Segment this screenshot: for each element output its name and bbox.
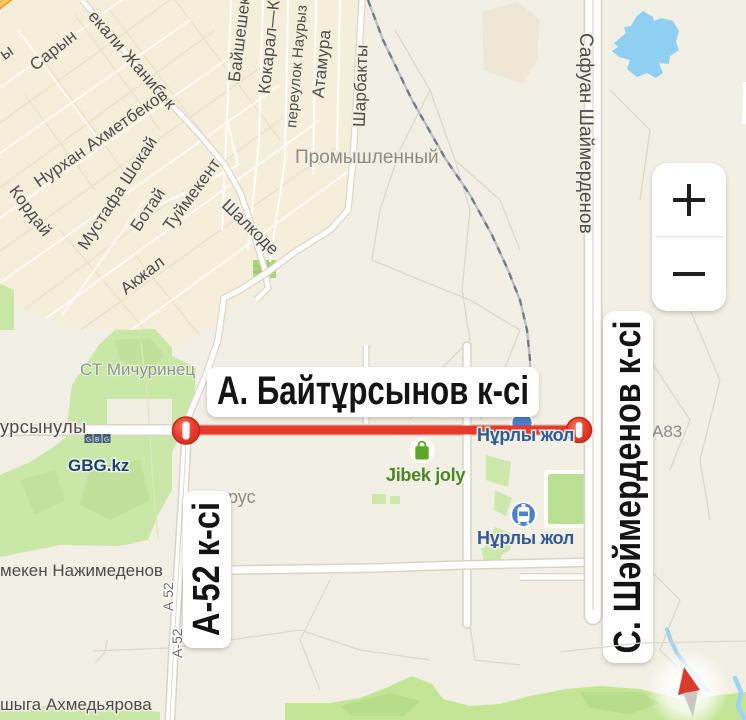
svg-text:А-52 к-сі: А-52 к-сі [186, 502, 228, 636]
svg-text:А. Байтұрсынов к-сі: А. Байтұрсынов к-сі [217, 369, 529, 413]
svg-text:шыга Ахмедьярова: шыга Ахмедьярова [0, 695, 152, 714]
svg-text:G: G [86, 437, 91, 444]
svg-text:А83: А83 [652, 422, 682, 441]
svg-text:А 52: А 52 [160, 582, 176, 611]
svg-text:Jibek joly: Jibek joly [386, 465, 465, 485]
svg-text:B: B [95, 437, 99, 444]
svg-text:А-52: А-52 [169, 628, 185, 658]
svg-text:Нұрлы жол: Нұрлы жол [477, 528, 574, 548]
svg-text:G: G [104, 437, 109, 444]
svg-text:рус: рус [228, 487, 256, 507]
svg-text:Промышленный: Промышленный [295, 147, 439, 168]
svg-text:GBG.kz: GBG.kz [68, 456, 129, 475]
svg-text:Нұрлы жол: Нұрлы жол [477, 425, 574, 445]
svg-text:Шарбакты: Шарбакты [350, 44, 372, 127]
svg-text:СТ Мичуринец: СТ Мичуринец [80, 360, 195, 379]
svg-text:Сафуан Шаймерденов: Сафуан Шаймерденов [575, 33, 596, 234]
svg-text:С. Шәймерденов к-сі: С. Шәймерденов к-сі [607, 321, 649, 654]
svg-text:мекен Нажимеденов: мекен Нажимеденов [0, 561, 163, 580]
svg-text:урсынулы: урсынулы [0, 417, 87, 437]
